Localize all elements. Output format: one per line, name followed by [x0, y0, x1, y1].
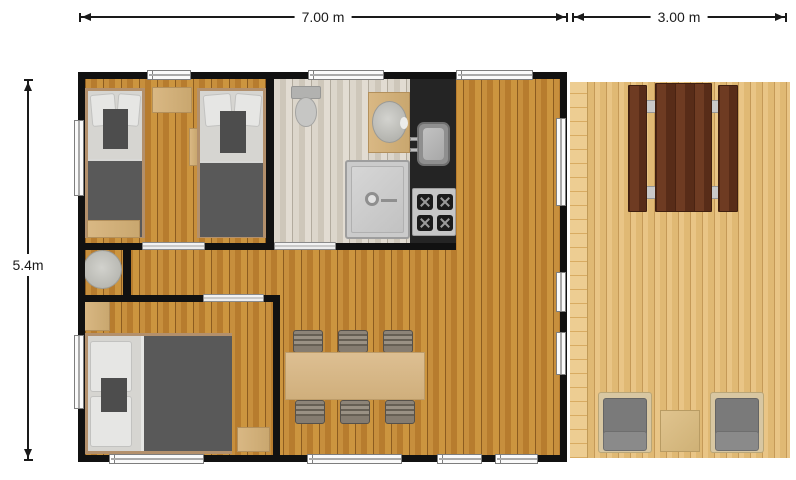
window-top-bedroom	[148, 70, 191, 80]
dining-chair	[383, 330, 413, 353]
door-master-bedroom	[203, 294, 264, 302]
bed-end-bench	[87, 220, 140, 238]
single-bed-right	[197, 88, 266, 238]
single-bed-left	[85, 88, 145, 238]
dimension-tick	[24, 79, 33, 81]
wall-utility-nook	[123, 243, 131, 302]
window-bottom-living-2	[438, 454, 482, 464]
dining-chair	[340, 400, 370, 424]
dimension-tick	[572, 13, 574, 22]
window-top-living	[457, 70, 533, 80]
sink-basin	[423, 128, 444, 160]
window-bottom-living-1	[308, 454, 402, 464]
dimension-tick	[785, 13, 787, 22]
wall-bedroom-bathroom	[266, 79, 274, 250]
dimension-tick	[566, 13, 568, 22]
arrow-up-icon	[24, 82, 32, 91]
bed-cushion	[101, 378, 127, 412]
basin-faucet	[400, 117, 408, 129]
dimension-label-height: 5.4m	[10, 254, 45, 276]
window-top-bathroom	[309, 70, 384, 80]
dimension-tick	[79, 13, 81, 22]
window-left-master	[74, 335, 84, 409]
deck-door-panel-1	[556, 272, 566, 312]
stove-burner	[437, 215, 453, 231]
kitchen-sink	[417, 122, 450, 166]
bathroom-vanity	[368, 92, 410, 153]
armchair-seat-cushion	[715, 431, 759, 451]
deck-edge-plank	[570, 82, 588, 458]
wall-hallway-top	[85, 243, 456, 250]
duvet	[200, 161, 263, 237]
arrow-left-icon	[82, 13, 91, 21]
deck-armchair-left	[598, 392, 652, 453]
dining-chair	[293, 330, 323, 353]
shower-drain	[365, 192, 379, 206]
picnic-bench-left	[628, 85, 647, 212]
stove-burner	[417, 215, 433, 231]
dining-chair	[338, 330, 368, 353]
toilet-bowl	[295, 97, 317, 127]
shower-handle	[381, 199, 397, 202]
deck-side-table	[660, 410, 700, 452]
stove-burner	[417, 194, 433, 210]
deck-armchair-right	[710, 392, 764, 453]
arrow-down-icon	[24, 449, 32, 458]
picnic-bench-right	[718, 85, 738, 212]
arrow-left-icon	[575, 13, 584, 21]
wall-master-right	[273, 295, 280, 455]
door-bedroom	[142, 242, 205, 250]
bedroom-desk	[152, 87, 192, 113]
window-right-living	[556, 118, 566, 206]
sink-tap	[410, 137, 418, 141]
arrow-right-icon	[775, 13, 784, 21]
dimension-tick	[24, 459, 33, 461]
picnic-table	[655, 83, 712, 212]
water-heater	[83, 250, 122, 289]
window-left-bedroom	[74, 120, 84, 196]
window-bottom-master	[110, 454, 204, 464]
nightstand	[83, 300, 110, 331]
dining-chair	[385, 400, 415, 424]
armchair-seat-cushion	[603, 431, 647, 451]
stove-burner	[437, 194, 453, 210]
stove	[412, 188, 456, 236]
bed-cushion	[103, 109, 128, 149]
shower-tray	[345, 160, 410, 239]
dimension-label-main-width: 7.00 m	[295, 9, 352, 25]
floorplan-canvas: 7.00 m 3.00 m 5.4m	[0, 0, 796, 480]
door-bathroom	[274, 242, 336, 250]
dimension-label-deck-width: 3.00 m	[651, 9, 708, 25]
dining-table	[285, 352, 425, 400]
double-bed	[85, 333, 232, 454]
duvet	[141, 336, 232, 451]
arrow-right-icon	[556, 13, 565, 21]
dining-chair	[295, 400, 325, 424]
bed-end-bench	[237, 427, 270, 452]
window-bottom-living-3	[496, 454, 538, 464]
deck-door-panel-2	[556, 332, 566, 375]
bed-cushion	[220, 111, 246, 153]
sink-tap	[410, 148, 418, 152]
